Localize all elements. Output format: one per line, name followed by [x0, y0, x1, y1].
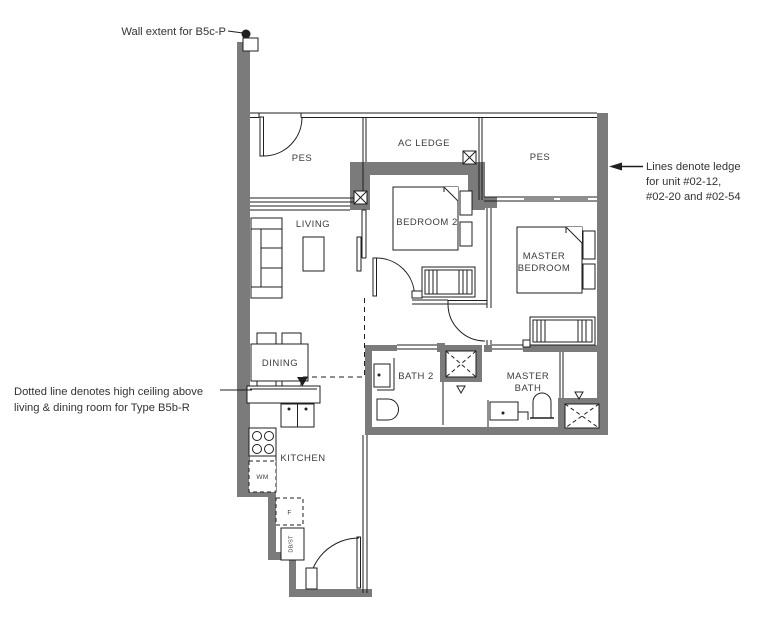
wall-extent-leader-line — [228, 31, 243, 33]
db-st-cabinet: DB/ST — [281, 528, 304, 560]
pes-door-arc — [264, 118, 303, 157]
ac-ledge-label: AC LEDGE — [398, 138, 450, 149]
master-bath-sink — [488, 400, 528, 427]
living-label: LIVING — [296, 219, 330, 230]
masterbath-top-wall-a — [484, 345, 492, 352]
pillow — [583, 231, 595, 259]
room-master-bedroom: MASTER BEDROOM — [517, 227, 595, 347]
room-bedroom2: BEDROOM 2 — [393, 187, 475, 298]
sofa — [251, 218, 282, 298]
masterbath-top-wall-b — [523, 345, 600, 352]
annotation-ceiling: Dotted line denotes high ceiling above l… — [14, 386, 252, 414]
master-bath-toilet — [530, 393, 554, 418]
room-bath2: BATH 2 — [374, 358, 443, 425]
entry-bottom-wall — [289, 589, 372, 597]
pes-left-label: PES — [292, 153, 313, 164]
bath-left-wall — [365, 345, 372, 435]
washer-label: WM — [256, 474, 268, 481]
fridge: F — [276, 498, 303, 525]
washing-machine: WM — [249, 461, 276, 492]
shaft-master-bath — [558, 398, 608, 435]
dining-chair — [282, 333, 301, 345]
annotation-wall-extent: Wall extent for B5c-P — [121, 26, 250, 39]
room-dining: DINING — [251, 333, 308, 391]
room-pes-left: PES — [292, 153, 313, 164]
master-bath-label-2: BATH — [515, 383, 542, 394]
step-wall-2 — [268, 494, 276, 560]
column-x-right — [463, 151, 476, 164]
pillow — [583, 264, 595, 289]
tv-console — [357, 237, 361, 271]
room-ac-ledge: AC LEDGE — [398, 138, 450, 149]
kitchen-counter — [247, 386, 320, 403]
stove — [249, 428, 276, 456]
pillow — [460, 222, 472, 246]
bath2-sink — [374, 364, 390, 387]
left-wall-top-notch — [243, 38, 258, 51]
bedroom2-door-leaf — [373, 258, 377, 296]
wall-extent-dot — [242, 30, 251, 39]
room-living: LIVING — [251, 218, 361, 298]
annotation-ledge: Lines denote ledge for unit #02-12, #02-… — [609, 161, 741, 203]
column-x-left — [354, 191, 367, 204]
wall-stub-master — [484, 197, 497, 208]
kitchen-sink — [281, 404, 314, 427]
pillow — [460, 191, 472, 215]
ledge-label-3: #02-20 and #02-54 — [646, 191, 741, 203]
pes-door-leaf — [260, 117, 264, 156]
right-wall — [597, 113, 608, 433]
shaft-corridor — [440, 345, 482, 393]
master-bath-label-1: MASTER — [507, 371, 550, 382]
dining-chair — [257, 333, 276, 345]
entry-door-stub — [306, 568, 317, 589]
coffee-table — [303, 237, 324, 271]
dining-label: DINING — [262, 358, 298, 369]
master-door-arc — [448, 304, 485, 341]
floor-plan-canvas: Wall extent for B5c-P — [0, 0, 784, 620]
room-kitchen: KITCHEN WM F DB/ST — [247, 386, 326, 560]
db-st-label: DB/ST — [289, 535, 295, 553]
floor-trap-icon — [457, 386, 465, 393]
entry-door-leaf — [357, 537, 361, 588]
wall-extent-label: Wall extent for B5c-P — [121, 26, 226, 38]
bedroom2-label: BEDROOM 2 — [396, 217, 458, 228]
bath2-label: BATH 2 — [398, 371, 434, 382]
kitchen-label: KITCHEN — [280, 453, 325, 464]
master-door-leaf — [448, 301, 487, 305]
bath2-toilet — [377, 399, 399, 420]
ceiling-label-1: Dotted line denotes high ceiling above — [14, 386, 203, 398]
bedroom2-door-arc — [377, 258, 415, 296]
bedroom2-wardrobe — [412, 267, 475, 298]
master-bedroom-label-2: BEDROOM — [518, 263, 571, 274]
fridge-label: F — [287, 510, 291, 517]
bath2-top-wall-left — [365, 345, 397, 351]
ceiling-label-2: living & dining room for Type B5b-R — [14, 402, 190, 414]
ledge-label-2: for unit #02-12, — [646, 176, 721, 188]
master-bedroom-label-1: MASTER — [523, 251, 566, 262]
left-wall — [237, 42, 250, 495]
floor-plan: Wall extent for B5c-P — [0, 0, 784, 620]
room-pes-right: PES — [530, 152, 551, 163]
ledge-label-1: Lines denote ledge — [646, 161, 741, 173]
pes-right-label: PES — [530, 152, 551, 163]
shower-trap-icon — [575, 392, 583, 399]
master-wardrobe — [523, 317, 595, 347]
